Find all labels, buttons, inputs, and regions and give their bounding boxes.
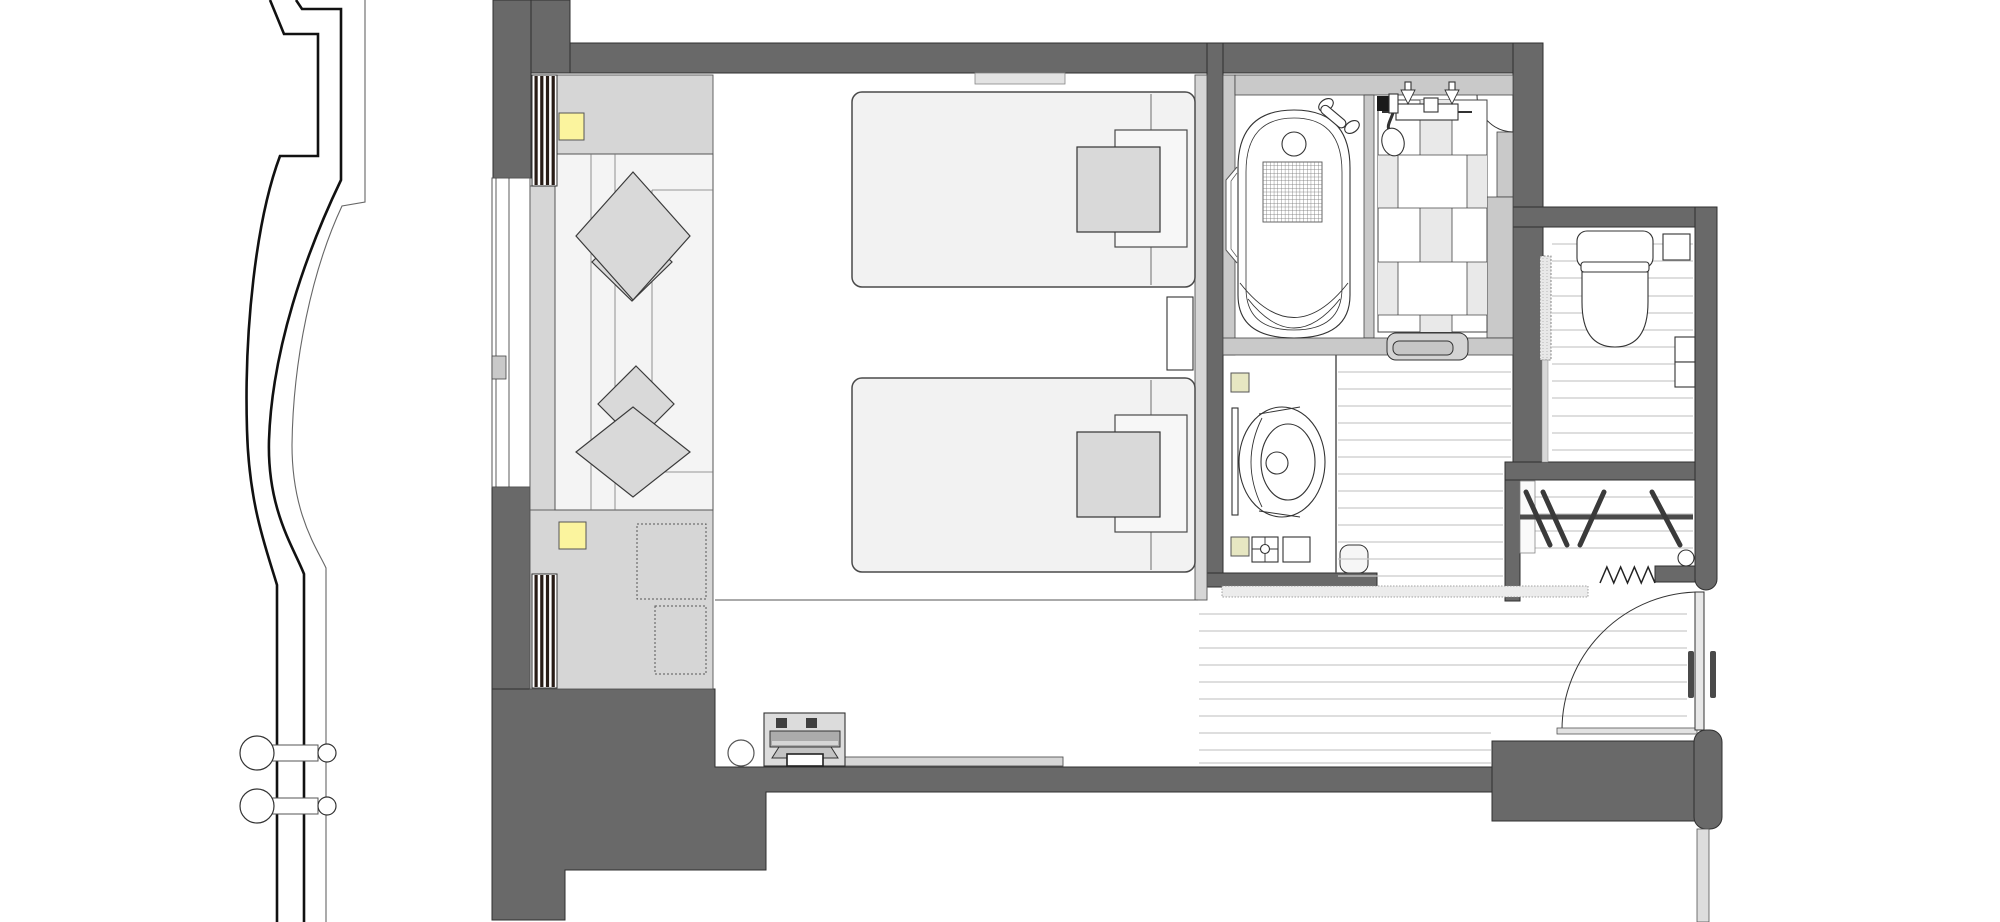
closet-knob [1678, 550, 1694, 566]
mullion-stripe [540, 76, 543, 185]
luggage-rack-tray [787, 754, 823, 766]
bath-top-finish [1235, 75, 1513, 95]
toilet-sliding-door [1540, 256, 1551, 360]
luggage-rack-knob-right [806, 718, 817, 728]
nightstand [1167, 297, 1193, 370]
bath-threshold-inner [1393, 341, 1453, 355]
toilet-bowl [1582, 272, 1648, 347]
fin-stem [272, 745, 318, 761]
tub-shower-divider [1364, 95, 1374, 338]
luggage-rack [764, 713, 845, 766]
tub-drain [1282, 132, 1306, 156]
stool-round [728, 740, 754, 766]
fin-large-circle [240, 789, 274, 823]
wall-left-lower [492, 487, 530, 689]
door-handle-inner [1688, 651, 1694, 698]
sink-drain [1266, 452, 1288, 474]
vanity-downlight-upper [1231, 373, 1249, 392]
shower-bracket [1377, 96, 1389, 111]
bed-2-pillow [1077, 432, 1160, 517]
bath-mat-grid [1263, 162, 1322, 222]
door-step-bar [1557, 728, 1697, 734]
shower-room [1377, 82, 1487, 360]
window-mullion-block [492, 356, 506, 379]
bath-bottom-finish [1223, 338, 1513, 355]
floor-plan-canvas [0, 0, 2000, 922]
vanity-hatch-panel [1283, 537, 1310, 562]
headboard-wall-panel [1195, 75, 1207, 600]
fin-small-circle [318, 744, 336, 762]
wall-vanity-bottom [1207, 573, 1377, 587]
mullion-stripe [535, 575, 538, 687]
floor-plan-page [0, 0, 2000, 922]
door-handle-outer [1710, 651, 1716, 698]
wall-left-upper [493, 0, 531, 178]
sliding-door-track [1542, 360, 1548, 462]
shower-diverter [1424, 98, 1438, 112]
wall-closet-left [1505, 462, 1520, 601]
wall-bedroom-bath-partition [1207, 43, 1223, 587]
toilet-seat-hinge [1581, 262, 1649, 272]
mullion-stripe [540, 575, 543, 687]
window-wall [492, 178, 530, 487]
wall-closet-top [1505, 462, 1695, 480]
mullion-stripe [535, 76, 538, 185]
wall-door-jamb-column [1694, 730, 1722, 829]
bed-2 [852, 378, 1195, 572]
toilet-paper-holder-lower [1675, 362, 1695, 387]
entry-door-leaf [1695, 592, 1704, 730]
sofa-corner [530, 75, 713, 689]
floor-drain [1252, 537, 1278, 562]
toilet-shelf-box [1663, 234, 1690, 260]
bathroom-tub-room [1226, 96, 1362, 338]
mullion-stripe [552, 76, 555, 185]
bed-1-pillow [1077, 147, 1160, 232]
toilet [1577, 231, 1653, 347]
shower-holder [1389, 94, 1398, 113]
luggage-rack-bar-highlight [772, 741, 838, 745]
wall-shelf-top [975, 73, 1065, 84]
tub-side-niche [1226, 167, 1237, 263]
entry-step-threshold [1222, 586, 1588, 597]
wall-closet-end-bar [1655, 566, 1695, 582]
mullion-stripe [552, 575, 555, 687]
mullion-stripe [546, 575, 549, 687]
towel-bar [1232, 408, 1238, 515]
toilet-paper-holder-upper [1675, 337, 1695, 362]
bed-1 [852, 92, 1195, 287]
fin-small-circle [318, 797, 336, 815]
wall-bath-toilet-divider [1513, 43, 1543, 462]
corridor-wall-strip [1697, 829, 1709, 922]
shower-right-finish-upper [1497, 132, 1513, 197]
wall-top-band [570, 43, 1543, 73]
vanity-downlight-lower [1231, 537, 1249, 556]
shower-right-finish-lower [1487, 197, 1513, 338]
window-band [492, 178, 530, 487]
downlight-upper [559, 113, 584, 140]
luggage-rack-knob-left [776, 718, 787, 728]
fin-large-circle [240, 736, 274, 770]
mullion-stripe [546, 76, 549, 185]
wall-right-column [1695, 207, 1717, 590]
low-bench-strip [845, 757, 1063, 766]
fin-stem [272, 798, 318, 814]
wall-bottom-right-block [1492, 741, 1700, 821]
downlight-lower [559, 522, 586, 549]
wall-toilet-top [1513, 207, 1717, 227]
